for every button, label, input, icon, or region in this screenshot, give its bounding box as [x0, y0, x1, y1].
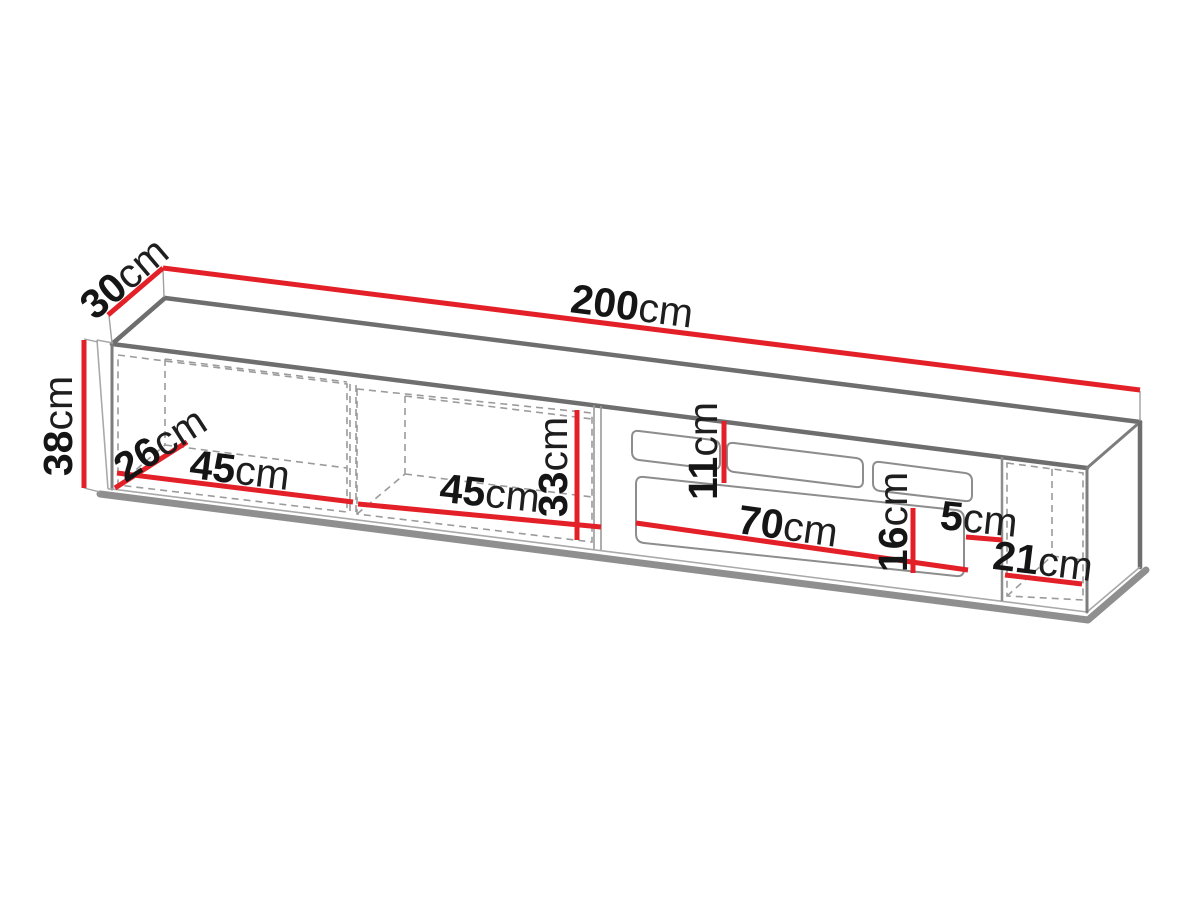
svg-text:30cm: 30cm	[71, 228, 177, 328]
dim-label-16: 16cm	[870, 472, 916, 572]
svg-text:200cm: 200cm	[568, 275, 696, 336]
svg-text:38cm: 38cm	[35, 376, 81, 476]
dim-label-11: 11cm	[680, 402, 726, 500]
dim-label-45a: 45cm	[187, 441, 292, 499]
svg-text:33cm: 33cm	[530, 417, 576, 517]
right-face-bottom-edge	[1087, 567, 1140, 612]
right-face-top-edge	[1087, 422, 1140, 468]
dim-label-30: 30cm	[71, 228, 177, 328]
svg-text:11cm: 11cm	[680, 402, 726, 500]
dim-label-200: 200cm	[568, 275, 696, 336]
furniture-dimension-diagram: 200cm 30cm 38cm 26cm 45cm 45cm 33cm 11cm…	[0, 0, 1200, 900]
divider-1	[350, 384, 356, 514]
svg-text:16cm: 16cm	[870, 472, 916, 572]
dim-label-38: 38cm	[35, 376, 81, 476]
diagram-svg: 200cm 30cm 38cm 26cm 45cm 45cm 33cm 11cm…	[0, 0, 1200, 900]
top-flap-middle	[727, 443, 863, 487]
svg-text:45cm: 45cm	[187, 441, 292, 499]
dim-label-33: 33cm	[530, 417, 576, 517]
